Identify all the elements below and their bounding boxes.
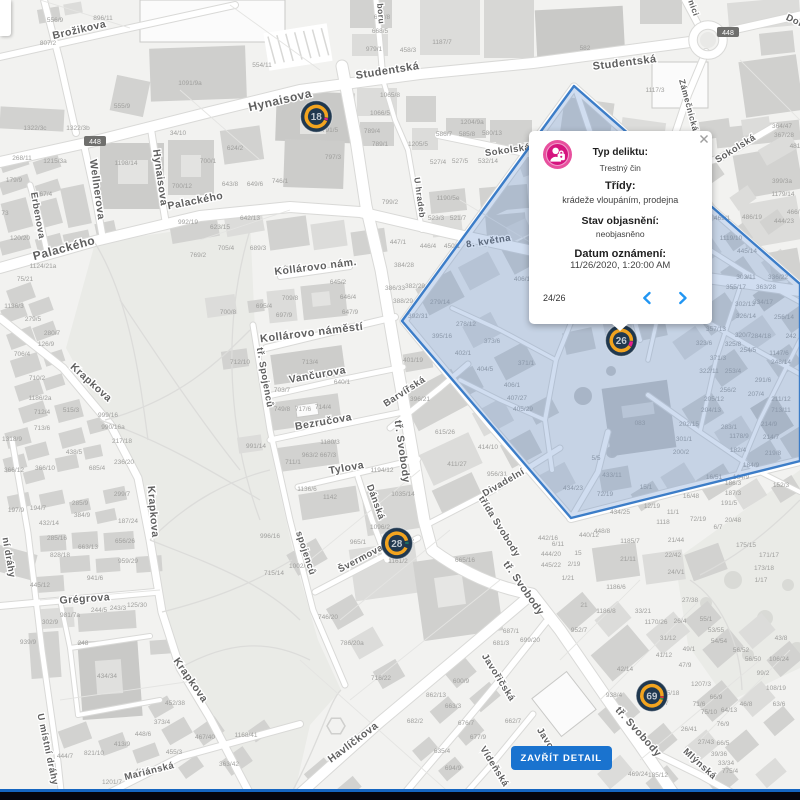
svg-text:31/12: 31/12 (660, 635, 677, 642)
svg-text:108/19: 108/19 (766, 685, 786, 692)
svg-text:1142: 1142 (323, 494, 337, 501)
svg-text:21: 21 (580, 602, 588, 609)
svg-text:600/9: 600/9 (453, 678, 470, 685)
svg-text:244/5: 244/5 (91, 607, 108, 614)
svg-text:527/5: 527/5 (452, 158, 469, 165)
svg-text:363/42: 363/42 (219, 761, 239, 768)
svg-text:716/22: 716/22 (371, 675, 391, 682)
svg-text:554/11: 554/11 (252, 62, 272, 69)
svg-text:236/20: 236/20 (114, 459, 134, 466)
svg-text:532/14: 532/14 (478, 158, 498, 165)
svg-text:75/21: 75/21 (17, 276, 34, 283)
svg-text:53/55: 53/55 (708, 627, 725, 634)
svg-text:695/4: 695/4 (256, 303, 273, 310)
svg-text:699/20: 699/20 (520, 637, 540, 644)
svg-text:69: 69 (646, 691, 658, 702)
svg-text:444/7: 444/7 (57, 753, 74, 760)
svg-text:649/6: 649/6 (247, 181, 264, 188)
svg-text:481: 481 (790, 143, 800, 150)
svg-text:2/19: 2/19 (568, 561, 581, 568)
svg-text:996/16: 996/16 (260, 533, 280, 540)
svg-text:448/6: 448/6 (135, 731, 152, 738)
svg-text:16/48: 16/48 (683, 493, 700, 500)
svg-text:1187/7: 1187/7 (432, 39, 452, 46)
svg-text:21/11: 21/11 (620, 556, 636, 563)
svg-text:66/9: 66/9 (710, 694, 723, 701)
svg-text:125/30: 125/30 (127, 602, 147, 609)
svg-text:646/4: 646/4 (340, 294, 357, 301)
svg-text:279/5: 279/5 (25, 316, 42, 323)
svg-text:41/12: 41/12 (656, 652, 673, 659)
svg-text:243/3: 243/3 (110, 605, 127, 612)
svg-text:1035/14: 1035/14 (391, 491, 415, 498)
svg-text:1186/6: 1186/6 (606, 584, 626, 591)
svg-text:248: 248 (78, 640, 89, 647)
svg-text:434/34: 434/34 (97, 673, 117, 680)
svg-text:56/52: 56/52 (733, 647, 750, 654)
svg-text:197/9: 197/9 (8, 507, 25, 514)
svg-text:54/54: 54/54 (711, 638, 728, 645)
svg-text:580/13: 580/13 (482, 130, 502, 137)
svg-text:99/2: 99/2 (757, 670, 770, 677)
svg-text:191/5: 191/5 (721, 500, 738, 507)
svg-text:697/9: 697/9 (276, 312, 293, 319)
svg-text:126/9: 126/9 (38, 341, 55, 348)
svg-text:1186/2a: 1186/2a (28, 395, 51, 402)
svg-text:714/4: 714/4 (315, 404, 332, 411)
svg-text:694/9: 694/9 (445, 765, 462, 772)
svg-text:640/1: 640/1 (334, 379, 351, 386)
svg-text:28: 28 (391, 539, 403, 550)
svg-text:43/8: 43/8 (775, 635, 788, 642)
svg-text:21/44: 21/44 (668, 537, 685, 544)
svg-text:447/1: 447/1 (390, 239, 407, 246)
svg-text:11/1: 11/1 (667, 509, 680, 516)
svg-text:26/41: 26/41 (681, 726, 698, 733)
svg-text:556/9: 556/9 (47, 17, 64, 24)
svg-text:1185/7: 1185/7 (620, 538, 640, 545)
svg-text:635/4: 635/4 (434, 748, 451, 755)
svg-text:715/14: 715/14 (264, 570, 284, 577)
svg-text:452/38: 452/38 (165, 700, 185, 707)
svg-text:991/14: 991/14 (246, 443, 266, 450)
svg-text:665/16: 665/16 (455, 557, 475, 564)
svg-text:72/19: 72/19 (690, 516, 707, 523)
svg-text:367/28: 367/28 (774, 132, 794, 139)
svg-text:486/19: 486/19 (742, 214, 762, 221)
svg-text:663/3: 663/3 (445, 703, 462, 710)
svg-text:941/6: 941/6 (87, 575, 104, 582)
svg-text:24/V1: 24/V1 (668, 569, 685, 576)
svg-text:185/12: 185/12 (648, 772, 668, 779)
svg-text:1201/7: 1201/7 (102, 779, 122, 786)
svg-text:448: 448 (89, 139, 101, 146)
svg-text:938/4: 938/4 (606, 692, 623, 699)
svg-text:27/43: 27/43 (698, 739, 715, 746)
svg-text:687/1: 687/1 (503, 628, 520, 635)
svg-text:667/3: 667/3 (320, 452, 337, 459)
svg-text:64/13: 64/13 (721, 707, 738, 714)
svg-text:789/1: 789/1 (372, 141, 389, 148)
svg-text:527/4: 527/4 (430, 159, 447, 166)
svg-text:445/12: 445/12 (30, 582, 50, 589)
svg-text:623/15: 623/15 (210, 224, 230, 231)
svg-text:152/3: 152/3 (773, 482, 790, 489)
svg-text:46/8: 46/8 (740, 701, 753, 708)
svg-text:63/6: 63/6 (773, 701, 786, 708)
svg-text:175/15: 175/15 (736, 542, 756, 549)
svg-text:1066/5: 1066/5 (370, 110, 390, 117)
svg-text:173/18: 173/18 (754, 565, 774, 572)
svg-text:712/4: 712/4 (34, 409, 51, 416)
svg-text:26/4: 26/4 (674, 618, 687, 625)
svg-text:285/9: 285/9 (72, 500, 89, 507)
svg-text:710/2: 710/2 (29, 375, 46, 382)
svg-text:401/19: 401/19 (403, 357, 423, 364)
svg-text:179/9: 179/9 (6, 177, 23, 184)
svg-text:22/42: 22/42 (665, 552, 682, 559)
svg-text:76/9: 76/9 (717, 721, 730, 728)
svg-text:700/8: 700/8 (220, 309, 237, 316)
svg-text:1198/14: 1198/14 (114, 160, 137, 167)
svg-text:366/10: 366/10 (35, 465, 55, 472)
svg-text:413/9: 413/9 (114, 741, 131, 748)
svg-text:746/20: 746/20 (318, 614, 338, 621)
svg-text:1186/8: 1186/8 (596, 608, 616, 615)
svg-text:1170/26: 1170/26 (644, 619, 667, 626)
svg-text:1/21: 1/21 (562, 575, 575, 582)
svg-text:217/18: 217/18 (112, 438, 132, 445)
svg-text:685/4: 685/4 (89, 465, 106, 472)
svg-text:42/14: 42/14 (617, 666, 634, 673)
svg-text:965/1: 965/1 (350, 539, 367, 546)
svg-text:366/12: 366/12 (4, 467, 24, 474)
svg-text:1205/5: 1205/5 (408, 141, 428, 148)
svg-text:414/10: 414/10 (478, 444, 498, 451)
svg-text:681/3: 681/3 (493, 640, 510, 647)
svg-text:712/10: 712/10 (230, 359, 250, 366)
svg-text:386/33: 386/33 (385, 285, 405, 292)
svg-text:382/29: 382/29 (405, 283, 425, 290)
svg-text:1168/41: 1168/41 (234, 732, 257, 739)
svg-text:boru: boru (375, 3, 387, 25)
svg-text:444/23: 444/23 (774, 218, 794, 225)
svg-text:33/21: 33/21 (635, 608, 652, 615)
svg-text:1190/5e: 1190/5e (436, 195, 459, 202)
svg-text:1117/3: 1117/3 (646, 87, 665, 94)
svg-text:703/7: 703/7 (274, 387, 291, 394)
svg-text:47/9: 47/9 (679, 662, 692, 669)
svg-text:399/3a: 399/3a (772, 178, 792, 185)
svg-text:396/21: 396/21 (410, 396, 430, 403)
svg-text:990/16a: 990/16a (101, 424, 125, 431)
svg-text:445/22: 445/22 (541, 562, 561, 569)
svg-text:979/1: 979/1 (366, 46, 383, 53)
svg-text:1204/9a: 1204/9a (460, 119, 484, 126)
svg-text:992/19: 992/19 (178, 219, 198, 226)
svg-text:999/16: 999/16 (98, 412, 118, 419)
svg-text:705/4: 705/4 (218, 245, 235, 252)
svg-text:364/47: 364/47 (772, 123, 792, 130)
svg-text:515/3: 515/3 (63, 407, 80, 414)
svg-text:373/4: 373/4 (154, 719, 171, 726)
svg-text:120/20: 120/20 (10, 235, 30, 242)
svg-text:384/28: 384/28 (394, 262, 414, 269)
svg-text:384/9: 384/9 (74, 512, 91, 519)
svg-text:467/40: 467/40 (195, 734, 215, 741)
svg-text:73: 73 (1, 210, 9, 217)
svg-text:66/5: 66/5 (717, 740, 730, 747)
svg-text:981/7a: 981/7a (60, 612, 80, 619)
svg-text:555/9: 555/9 (114, 103, 131, 110)
svg-text:1207/3: 1207/3 (691, 681, 711, 688)
svg-text:521/7: 521/7 (450, 215, 467, 222)
svg-text:862/13: 862/13 (426, 692, 446, 699)
svg-text:302/9: 302/9 (42, 619, 59, 626)
svg-text:187/3: 187/3 (725, 490, 742, 497)
svg-text:952/7: 952/7 (571, 627, 588, 634)
svg-text:709/8: 709/8 (282, 295, 299, 302)
svg-text:187/24: 187/24 (118, 518, 138, 525)
svg-text:106/24: 106/24 (769, 656, 789, 663)
svg-text:411/27: 411/27 (447, 461, 467, 468)
svg-text:1194/12: 1194/12 (370, 467, 393, 474)
svg-text:71/6: 71/6 (693, 701, 706, 708)
svg-text:713/6: 713/6 (34, 425, 51, 432)
svg-text:299/7: 299/7 (114, 491, 131, 498)
svg-text:444/20: 444/20 (541, 551, 561, 558)
svg-text:717/6: 717/6 (295, 406, 312, 413)
svg-text:1065/8: 1065/8 (380, 92, 400, 99)
svg-text:662/7: 662/7 (505, 718, 522, 725)
svg-text:1322/3b: 1322/3b (66, 125, 90, 132)
svg-text:33/34: 33/34 (718, 760, 735, 767)
svg-text:749/8: 749/8 (274, 406, 291, 413)
svg-text:466/7: 466/7 (787, 209, 800, 216)
svg-text:585/8: 585/8 (459, 131, 476, 138)
svg-text:668/5: 668/5 (372, 28, 389, 35)
svg-text:1/17: 1/17 (755, 577, 768, 584)
svg-text:268/11: 268/11 (12, 155, 32, 162)
svg-text:15: 15 (574, 550, 582, 557)
svg-text:1091/9a: 1091/9a (178, 80, 202, 87)
svg-text:432/14: 432/14 (39, 520, 59, 527)
svg-text:27/38: 27/38 (682, 597, 699, 604)
svg-text:18: 18 (311, 112, 323, 123)
svg-text:1136/3: 1136/3 (4, 303, 24, 310)
svg-text:438/5: 438/5 (66, 449, 83, 456)
svg-text:55/1: 55/1 (700, 616, 713, 623)
svg-text:448: 448 (722, 30, 734, 37)
svg-text:799/2: 799/2 (382, 199, 399, 206)
svg-text:706/4: 706/4 (14, 351, 31, 358)
svg-text:20/48: 20/48 (725, 517, 742, 524)
svg-text:797/3: 797/3 (325, 154, 342, 161)
svg-text:689/3: 689/3 (250, 245, 267, 252)
svg-text:1179/14: 1179/14 (771, 191, 794, 198)
svg-text:746/1: 746/1 (272, 178, 289, 185)
svg-text:582: 582 (580, 45, 591, 52)
svg-text:645/2: 645/2 (330, 279, 347, 286)
svg-text:615/26: 615/26 (435, 429, 455, 436)
svg-text:1318/9: 1318/9 (2, 436, 22, 443)
svg-text:455/3: 455/3 (166, 749, 183, 756)
svg-text:643/8: 643/8 (222, 181, 239, 188)
svg-text:75/10: 75/10 (701, 709, 718, 716)
svg-text:586/7: 586/7 (436, 131, 453, 138)
svg-text:186/3: 186/3 (725, 480, 742, 487)
svg-text:959/29: 959/29 (118, 558, 138, 565)
svg-text:49/1: 49/1 (683, 646, 696, 653)
svg-text:5/18: 5/18 (667, 690, 680, 697)
svg-text:775/4: 775/4 (722, 768, 739, 775)
svg-text:963/2: 963/2 (302, 452, 319, 459)
svg-text:434/25: 434/25 (610, 509, 630, 516)
svg-text:458/3: 458/3 (400, 47, 417, 54)
svg-text:26: 26 (616, 336, 628, 347)
svg-text:1180/3: 1180/3 (320, 439, 340, 446)
svg-text:6/11: 6/11 (552, 541, 565, 548)
svg-text:828/18: 828/18 (50, 552, 70, 559)
svg-text:711/1: 711/1 (285, 459, 301, 466)
svg-text:624/2: 624/2 (227, 145, 244, 152)
svg-text:677/9: 677/9 (470, 734, 487, 741)
svg-text:1118: 1118 (656, 519, 670, 526)
svg-text:446/4: 446/4 (420, 243, 437, 250)
svg-text:769/2: 769/2 (190, 252, 207, 259)
svg-text:1215/3a: 1215/3a (43, 158, 67, 165)
svg-text:285/16: 285/16 (47, 535, 67, 542)
svg-text:12/19: 12/19 (644, 503, 661, 510)
svg-text:700/1: 700/1 (200, 158, 217, 165)
svg-text:821/10: 821/10 (84, 750, 104, 757)
svg-text:171/17: 171/17 (759, 552, 779, 559)
svg-text:1136/6: 1136/6 (297, 486, 317, 493)
svg-text:1322/3c: 1322/3c (23, 125, 47, 132)
svg-text:440/12: 440/12 (579, 532, 599, 539)
svg-text:682/2: 682/2 (407, 718, 424, 725)
svg-text:656/26: 656/26 (115, 538, 135, 545)
svg-text:647/9: 647/9 (342, 309, 359, 316)
svg-text:194/7: 194/7 (30, 505, 47, 512)
svg-text:676/7: 676/7 (458, 720, 475, 727)
svg-text:663/13: 663/13 (78, 544, 98, 551)
svg-text:713/4: 713/4 (302, 359, 319, 366)
svg-text:39/36: 39/36 (711, 751, 728, 758)
svg-text:523/3: 523/3 (428, 215, 445, 222)
svg-text:6/7: 6/7 (713, 524, 722, 531)
svg-text:642/13: 642/13 (240, 215, 260, 222)
svg-text:56/50: 56/50 (745, 656, 762, 663)
svg-text:786/20a: 786/20a (340, 640, 364, 647)
svg-text:700/12: 700/12 (172, 183, 192, 190)
svg-text:280/7: 280/7 (44, 330, 61, 337)
svg-text:469/24: 469/24 (628, 771, 648, 778)
svg-text:789/4: 789/4 (364, 128, 381, 135)
svg-text:388/29: 388/29 (393, 298, 413, 305)
svg-text:34/10: 34/10 (170, 130, 187, 137)
svg-text:1124/21a: 1124/21a (30, 263, 57, 270)
svg-text:939/9: 939/9 (20, 639, 37, 646)
